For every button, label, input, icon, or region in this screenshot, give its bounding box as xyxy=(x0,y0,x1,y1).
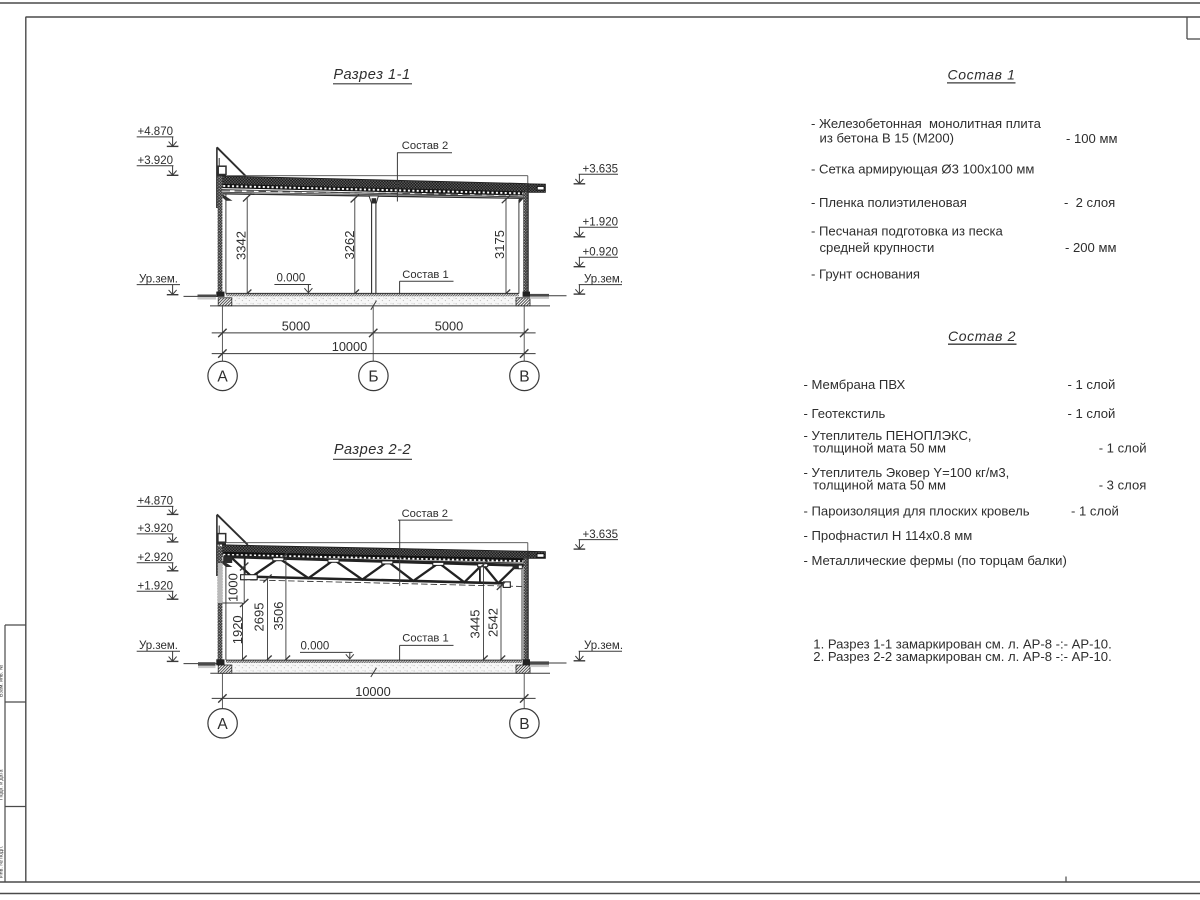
svg-text:Инв. № подл.: Инв. № подл. xyxy=(0,846,5,878)
svg-text:- Пароизоляция для плоских кро: - Пароизоляция для плоских кровель xyxy=(804,503,1030,518)
svg-text:- 1 слой: - 1 слой xyxy=(1068,406,1116,421)
svg-text:Б: Б xyxy=(368,369,378,386)
svg-text:- Профнастил Н 114х0.8 мм: - Профнастил Н 114х0.8 мм xyxy=(804,528,973,543)
svg-text:В: В xyxy=(519,716,529,733)
svg-text:- 1 слой: - 1 слой xyxy=(1071,503,1119,518)
svg-text:Ур.зем.: Ур.зем. xyxy=(139,640,178,652)
svg-text:5000: 5000 xyxy=(282,319,310,334)
svg-text:Ур.зем.: Ур.зем. xyxy=(139,274,178,286)
svg-text:- Геотекстиль: - Геотекстиль xyxy=(804,406,886,421)
svg-text:А: А xyxy=(217,716,228,733)
svg-text:Подп. и дата: Подп. и дата xyxy=(0,769,5,800)
svg-text:- Сетка армирующая Ø3 100х100: - Сетка армирующая Ø3 100х100 мм xyxy=(811,161,1034,176)
svg-text:- 100 мм: - 100 мм xyxy=(1066,131,1118,146)
svg-text:1920: 1920 xyxy=(230,615,245,644)
svg-text:- 1 слой: - 1 слой xyxy=(1099,441,1147,456)
svg-text:3506: 3506 xyxy=(271,602,286,631)
svg-text:10000: 10000 xyxy=(332,339,368,354)
svg-text:- 2 слоя: - 2 слоя xyxy=(1064,195,1115,210)
svg-text:Состав 1: Состав 1 xyxy=(402,633,448,645)
svg-text:Состав 1: Состав 1 xyxy=(948,67,1016,83)
svg-text:В: В xyxy=(519,369,529,386)
svg-text:3342: 3342 xyxy=(233,231,248,260)
svg-text:- Мембрана ПВХ: - Мембрана ПВХ xyxy=(804,377,906,392)
svg-text:Разрез 1-1: Разрез 1-1 xyxy=(333,67,410,83)
svg-text:А: А xyxy=(217,369,228,386)
svg-text:толщиной мата 50 мм: толщиной мата 50 мм xyxy=(813,441,946,456)
svg-text:Состав 2: Состав 2 xyxy=(948,328,1016,344)
svg-text:Состав 2: Состав 2 xyxy=(402,508,448,520)
svg-text:из бетона В 15 (М200): из бетона В 15 (М200) xyxy=(820,131,955,146)
svg-text:10000: 10000 xyxy=(355,684,391,699)
svg-text:- Металлические фермы (по торц: - Металлические фермы (по торцам балки) xyxy=(804,553,1067,568)
svg-text:1000: 1000 xyxy=(226,573,241,602)
svg-text:- Пленка полиэтиленовая: - Пленка полиэтиленовая xyxy=(811,195,967,210)
svg-text:3262: 3262 xyxy=(342,231,357,260)
svg-text:2542: 2542 xyxy=(486,608,501,637)
svg-text:средней крупности: средней крупности xyxy=(820,240,935,255)
svg-text:2. Разрез 2-2 замаркирован см.: 2. Разрез 2-2 замаркирован см. л. АР-8 -… xyxy=(813,649,1111,664)
svg-text:Разрез 2-2: Разрез 2-2 xyxy=(334,442,411,458)
svg-text:Состав 2: Состав 2 xyxy=(402,140,448,152)
svg-text:Ур.зем.: Ур.зем. xyxy=(584,640,623,652)
svg-text:3445: 3445 xyxy=(468,610,483,639)
svg-text:5000: 5000 xyxy=(435,319,463,334)
svg-text:0.000: 0.000 xyxy=(277,273,306,285)
svg-text:- Железобетонная монолитная п: - Железобетонная монолитная плита xyxy=(811,116,1042,131)
svg-text:2695: 2695 xyxy=(251,603,266,632)
svg-text:- Грунт основания: - Грунт основания xyxy=(811,267,920,282)
svg-text:- 3 слоя: - 3 слоя xyxy=(1099,478,1147,493)
svg-text:Ур.зем.: Ур.зем. xyxy=(584,274,623,286)
svg-text:- Песчаная подготовка из песка: - Песчаная подготовка из песка xyxy=(811,224,1004,239)
svg-text:- 1 слой: - 1 слой xyxy=(1068,377,1116,392)
svg-text:толщиной мата 50 мм: толщиной мата 50 мм xyxy=(813,478,946,493)
svg-text:Взам. инв. №: Взам. инв. № xyxy=(0,664,5,697)
svg-text:Состав 1: Состав 1 xyxy=(402,269,448,281)
svg-text:3175: 3175 xyxy=(492,230,507,259)
svg-text:0.000: 0.000 xyxy=(301,641,330,653)
svg-text:- 200 мм: - 200 мм xyxy=(1065,240,1117,255)
